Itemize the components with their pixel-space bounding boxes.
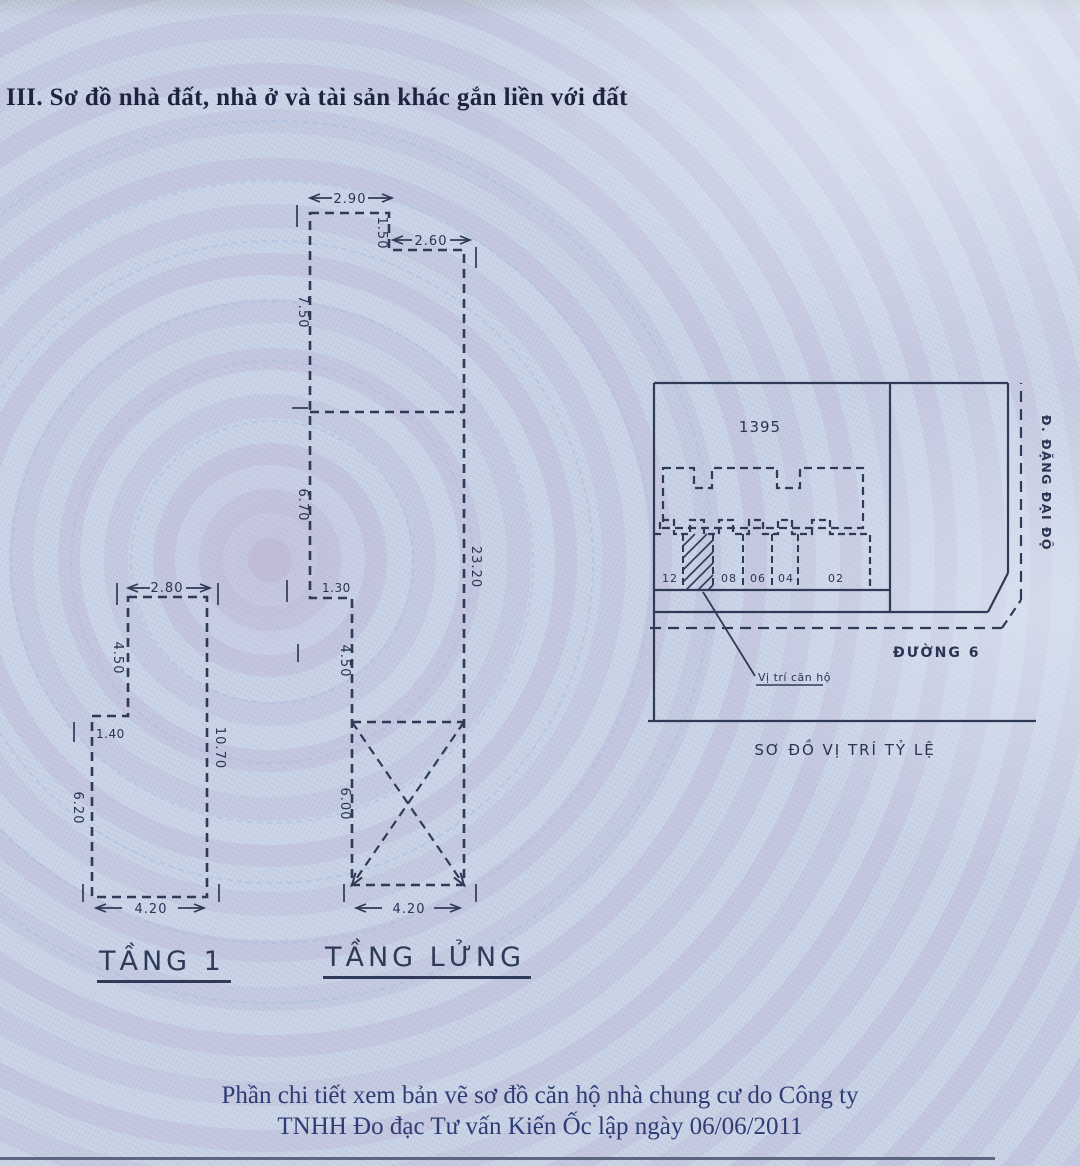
tang1-dim-right: 10.70 xyxy=(212,727,227,769)
unit-label-04: 04 xyxy=(778,572,794,585)
site-map: 1395 12 08 06 04 02 Vị trí căn hộ ĐƯỜNG … xyxy=(648,383,1054,759)
unit-label-02: 02 xyxy=(828,572,844,585)
tang-lung-dim-right: 23.20 xyxy=(468,546,483,588)
marker-leader-line xyxy=(703,592,755,676)
tang1-dim-step: 1.40 xyxy=(96,727,125,741)
tang1-outline xyxy=(92,597,207,897)
floor-plan-tang-lung: 2.90 2.60 4.20 1.50 7.50 6.70 23.20 4.50… xyxy=(287,192,483,917)
marker-label: Vị trí căn hộ xyxy=(758,671,831,684)
tang-lung-dim-notch-top: 2.60 xyxy=(415,234,448,249)
unit-label-12: 12 xyxy=(662,572,678,585)
footer-line2: TNHH Đo đạc Tư vấn Kiến Ốc lập ngày 06/0… xyxy=(0,1111,1080,1142)
tang-lung-dim-step: 1.30 xyxy=(322,581,351,595)
parcel-number: 1395 xyxy=(739,418,781,436)
floor-label-tang1: TẦNG 1 xyxy=(97,946,231,983)
tang-lung-dim-void: 6.00 xyxy=(337,788,352,821)
certificate-page: III. Sơ đồ nhà đất, nhà ở và tài sản khá… xyxy=(0,0,1080,1166)
street-right-label: Đ. ĐẶNG ĐẠI ĐỘ xyxy=(1039,415,1054,551)
tang1-dim-top: 2.80 xyxy=(151,581,184,596)
tang1-dim-bottom: 4.20 xyxy=(135,902,168,917)
subject-unit-hatch xyxy=(683,534,713,590)
tang-lung-dim-bottom: 4.20 xyxy=(393,902,426,917)
tang-lung-dim-left-upper: 7.50 xyxy=(295,296,310,329)
drawings-svg: 2.80 4.20 4.50 6.20 10.70 1.40 xyxy=(0,0,1080,1166)
footer-note: Phần chi tiết xem bản vẽ sơ đồ căn hộ nh… xyxy=(0,1080,1080,1143)
unit-label-08: 08 xyxy=(721,572,737,585)
page-bottom-rule xyxy=(0,1157,995,1160)
tang-lung-dim-left-lower: 4.50 xyxy=(337,645,352,678)
tang-lung-dim-notch-depth: 1.50 xyxy=(374,217,389,250)
unit-label-06: 06 xyxy=(750,572,766,585)
footer-line1: Phần chi tiết xem bản vẽ sơ đồ căn hộ nh… xyxy=(0,1080,1080,1111)
floor-plan-tang1: 2.80 4.20 4.50 6.20 10.70 1.40 xyxy=(70,581,227,917)
street-bottom-label: ĐƯỜNG 6 xyxy=(893,643,980,661)
tang1-dim-left-upper: 4.50 xyxy=(110,642,125,675)
tang-lung-dim-top: 2.90 xyxy=(334,192,367,207)
floor-label-tang-lung: TẦNG LỬNG xyxy=(323,942,531,979)
tang1-dim-left-lower: 6.20 xyxy=(70,792,85,825)
tang-lung-dim-left-mid: 6.70 xyxy=(295,489,310,522)
tang-lung-outline xyxy=(310,213,464,885)
map-caption: SƠ ĐỒ VỊ TRÍ TỶ LỆ xyxy=(754,738,935,759)
